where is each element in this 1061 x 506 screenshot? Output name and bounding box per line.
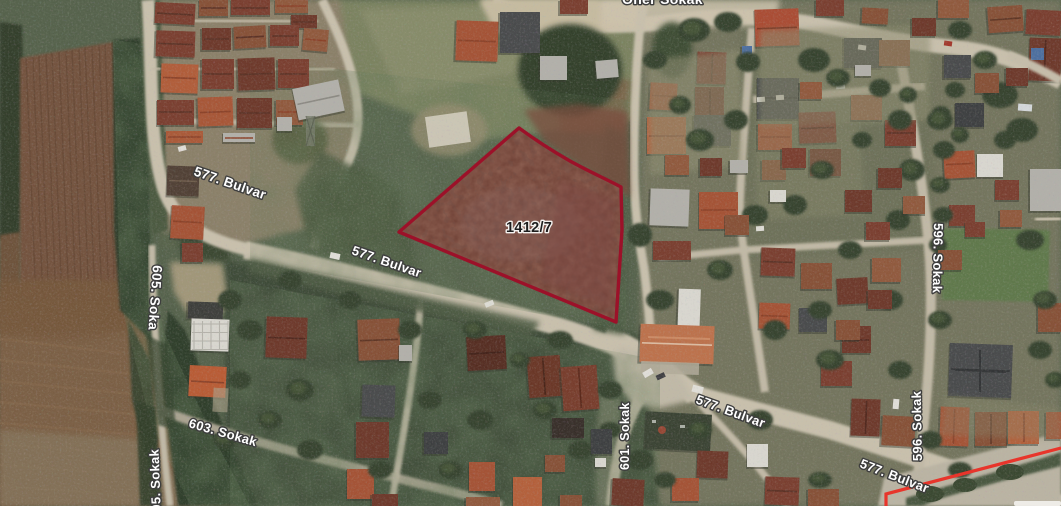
svg-text:601. Sokak: 601. Sokak [618, 402, 632, 470]
svg-text:1412/7: 1412/7 [506, 220, 552, 236]
svg-text:596. Sokak: 596. Sokak [930, 223, 946, 294]
svg-text:596. Sokak: 596. Sokak [909, 390, 925, 461]
svg-text:Öner Sokak: Öner Sokak [622, 0, 703, 7]
svg-text:605. Sokak: 605. Sokak [147, 448, 164, 506]
